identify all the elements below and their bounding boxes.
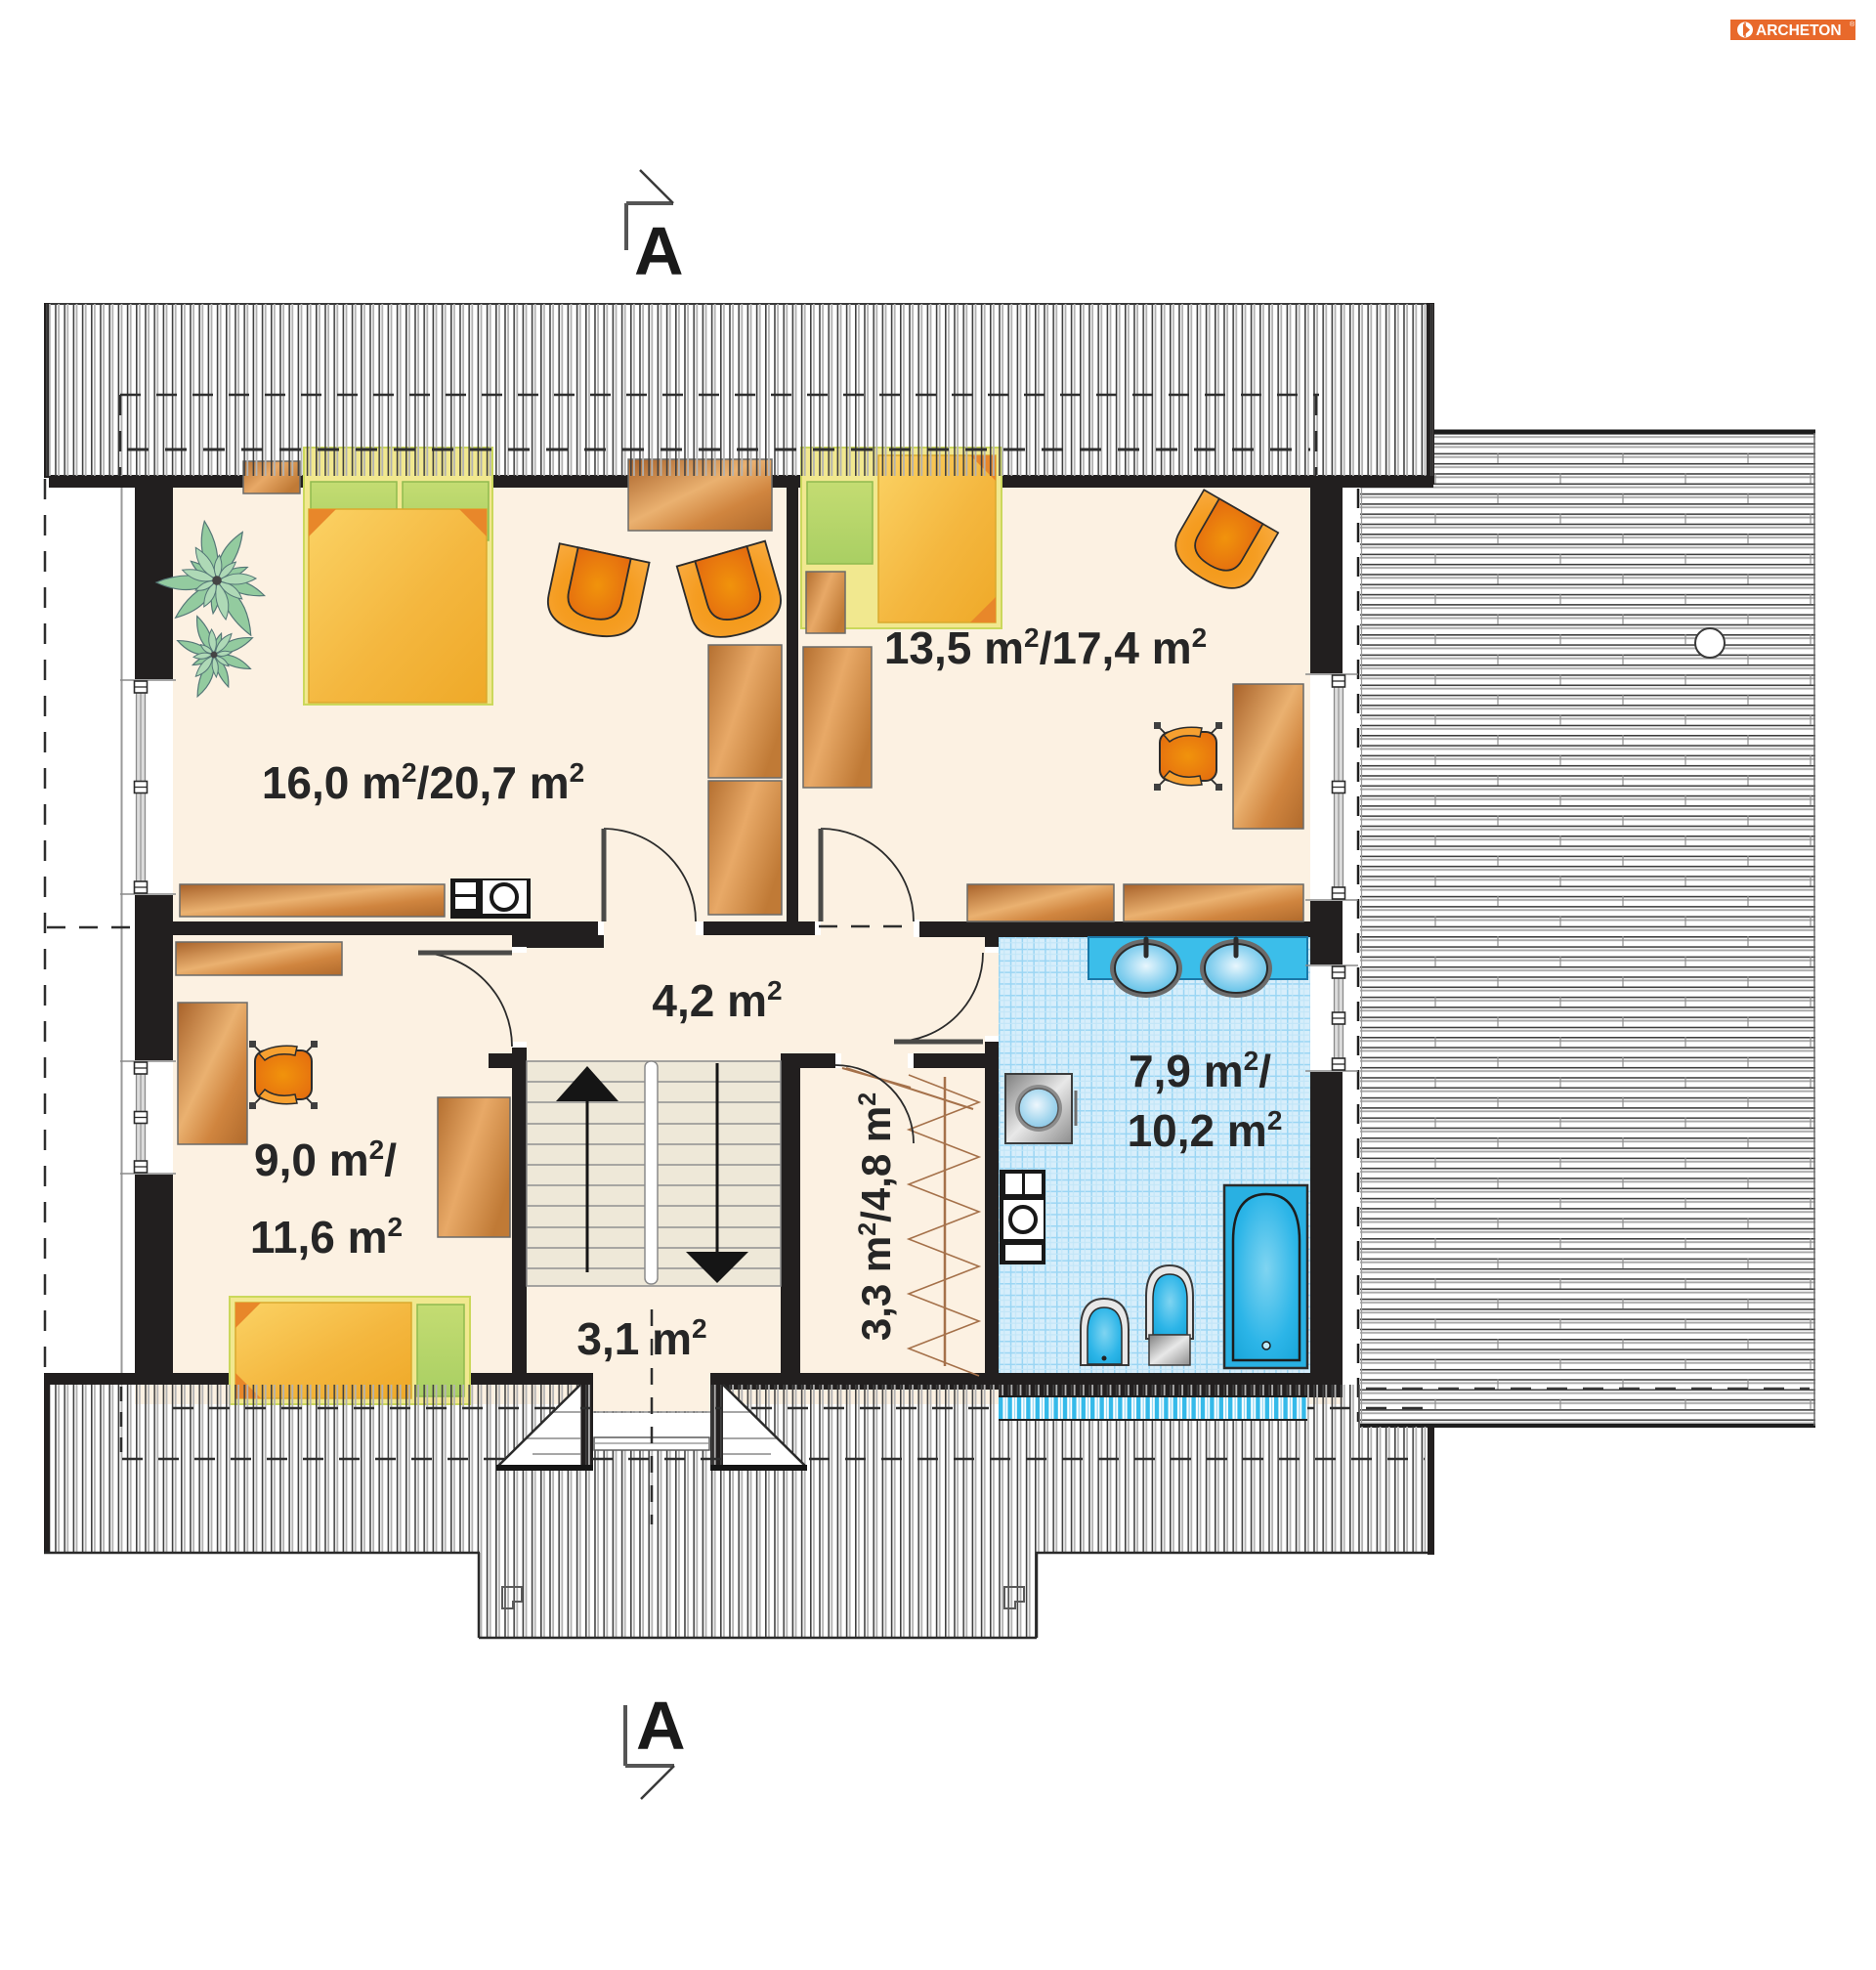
svg-text:3,3 m2/4,8 m2: 3,3 m2/4,8 m2 — [853, 1092, 899, 1341]
svg-text:11,6 m2: 11,6 m2 — [250, 1212, 403, 1263]
svg-text:10,2 m2: 10,2 m2 — [1128, 1105, 1283, 1156]
svg-text:ARCHETON: ARCHETON — [1756, 22, 1842, 39]
svg-text:4,2 m2: 4,2 m2 — [652, 975, 782, 1026]
svg-text:13,5 m2/17,4 m2: 13,5 m2/17,4 m2 — [884, 622, 1207, 673]
svg-text:16,0 m2/20,7 m2: 16,0 m2/20,7 m2 — [262, 757, 584, 808]
svg-text:A: A — [636, 1688, 686, 1764]
svg-text:3,1 m2: 3,1 m2 — [576, 1313, 706, 1364]
svg-text:®: ® — [1850, 21, 1855, 28]
svg-text:A: A — [634, 213, 684, 289]
